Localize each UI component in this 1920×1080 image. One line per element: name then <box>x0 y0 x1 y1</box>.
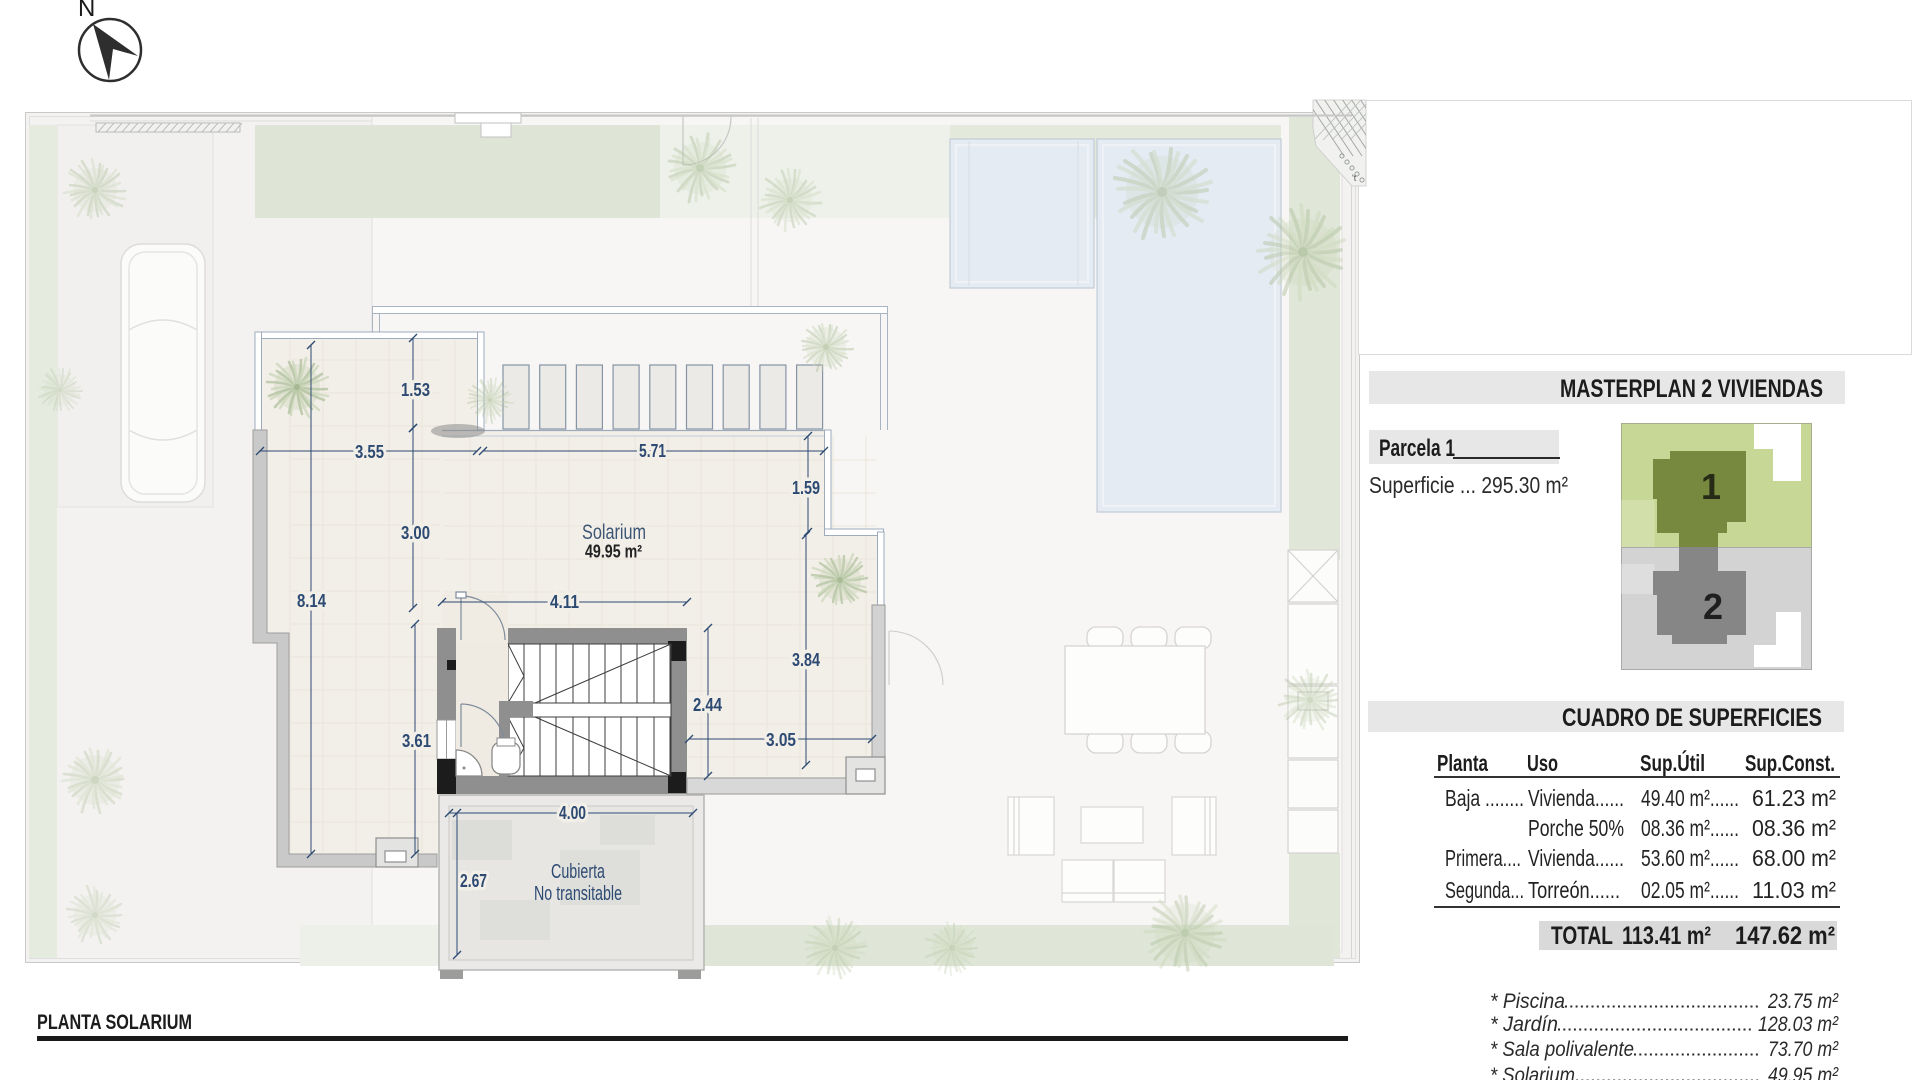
svg-text:3.05: 3.05 <box>766 730 796 750</box>
svg-text:CUADRO DE SUPERFICIES: CUADRO DE SUPERFICIES <box>1562 704 1822 732</box>
svg-text:PLANTA SOLARIUM: PLANTA SOLARIUM <box>37 1011 192 1034</box>
svg-text:1: 1 <box>1701 466 1721 507</box>
svg-text:11.03 m²: 11.03 m² <box>1752 877 1836 903</box>
svg-text:Cubierta: Cubierta <box>551 861 606 883</box>
svg-text:N: N <box>78 0 95 22</box>
svg-text:3.00: 3.00 <box>401 523 430 543</box>
svg-text:49.95 m²: 49.95 m² <box>585 542 642 562</box>
svg-text:61.23 m²: 61.23 m² <box>1752 785 1836 811</box>
svg-text:3.84: 3.84 <box>792 650 820 670</box>
svg-text:3.55: 3.55 <box>355 442 384 462</box>
svg-text:5.71: 5.71 <box>639 441 666 461</box>
svg-text:68.00 m²: 68.00 m² <box>1752 845 1836 871</box>
svg-text:49.40 m²......: 49.40 m²...... <box>1641 785 1739 811</box>
svg-text:MASTERPLAN 2 VIVIENDAS: MASTERPLAN 2 VIVIENDAS <box>1560 375 1823 403</box>
svg-text:73.70 m²: 73.70 m² <box>1768 1038 1839 1061</box>
svg-text:* Solarium: * Solarium <box>1490 1064 1575 1080</box>
svg-text:4.00: 4.00 <box>559 803 586 823</box>
svg-text:1.53: 1.53 <box>401 380 430 400</box>
svg-text:02.05 m²......: 02.05 m²...... <box>1641 877 1739 903</box>
svg-text:Vivienda......: Vivienda...... <box>1528 785 1624 811</box>
svg-text:Uso: Uso <box>1527 750 1558 776</box>
svg-text:No transitable: No transitable <box>534 883 622 905</box>
svg-text:Sup.Const.: Sup.Const. <box>1745 750 1835 776</box>
svg-text:* Jardín: * Jardín <box>1490 1013 1558 1036</box>
svg-text:08.36 m²......: 08.36 m²...... <box>1641 815 1739 841</box>
svg-text:Planta: Planta <box>1437 750 1488 776</box>
svg-text:'t: 't <box>1352 173 1357 183</box>
svg-text:2: 2 <box>1703 586 1723 627</box>
svg-text:Segunda...: Segunda... <box>1445 877 1524 903</box>
svg-text:147.62 m²: 147.62 m² <box>1735 922 1835 950</box>
svg-text:53.60 m²......: 53.60 m²...... <box>1641 845 1739 871</box>
svg-text:23.75 m²: 23.75 m² <box>1767 990 1839 1013</box>
svg-text:2.67: 2.67 <box>460 871 487 891</box>
svg-text:113.41 m²: 113.41 m² <box>1622 922 1711 950</box>
svg-text:Primera....: Primera.... <box>1445 845 1521 871</box>
svg-text:3.61: 3.61 <box>402 731 431 751</box>
svg-text:Baja ........: Baja ........ <box>1445 785 1524 811</box>
svg-text:TOTAL: TOTAL <box>1551 922 1613 950</box>
svg-text:2.44: 2.44 <box>693 695 722 715</box>
svg-text:Porche 50%: Porche 50% <box>1528 815 1624 841</box>
svg-text:08.36 m²: 08.36 m² <box>1752 815 1836 841</box>
svg-text:Vivienda......: Vivienda...... <box>1528 845 1624 871</box>
svg-text:Torreón......: Torreón...... <box>1528 877 1620 903</box>
svg-text:49.95 m²: 49.95 m² <box>1768 1064 1839 1080</box>
svg-text:* Piscina: * Piscina <box>1490 990 1565 1013</box>
svg-text:Superficie ... 295.30 m²: Superficie ... 295.30 m² <box>1369 472 1568 498</box>
svg-text:* Sala polivalente: * Sala polivalente <box>1490 1038 1634 1061</box>
svg-text:8.14: 8.14 <box>297 591 326 611</box>
svg-text:Sup.Útil: Sup.Útil <box>1640 749 1705 776</box>
svg-text:Parcela 1: Parcela 1 <box>1379 435 1455 462</box>
svg-text:1.59: 1.59 <box>792 478 820 498</box>
svg-text:128.03 m²: 128.03 m² <box>1758 1013 1839 1036</box>
svg-text:4.11: 4.11 <box>550 592 579 612</box>
